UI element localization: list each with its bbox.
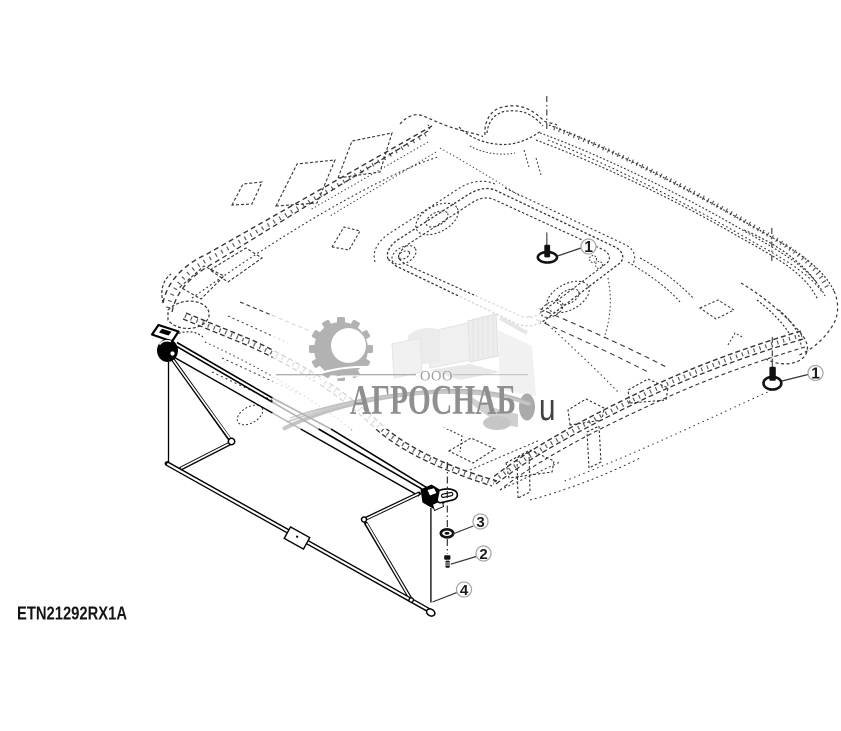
svg-text:АГРОСНАБ: АГРОСНАБ [350,378,516,424]
svg-text:2: 2 [479,546,487,563]
svg-text:4: 4 [460,582,469,599]
svg-text:ETN21292RX1A: ETN21292RX1A [17,604,127,624]
svg-text:1: 1 [584,239,593,256]
svg-text:3: 3 [476,514,484,531]
svg-text:1: 1 [811,366,820,383]
svg-text:u: u [539,387,556,429]
